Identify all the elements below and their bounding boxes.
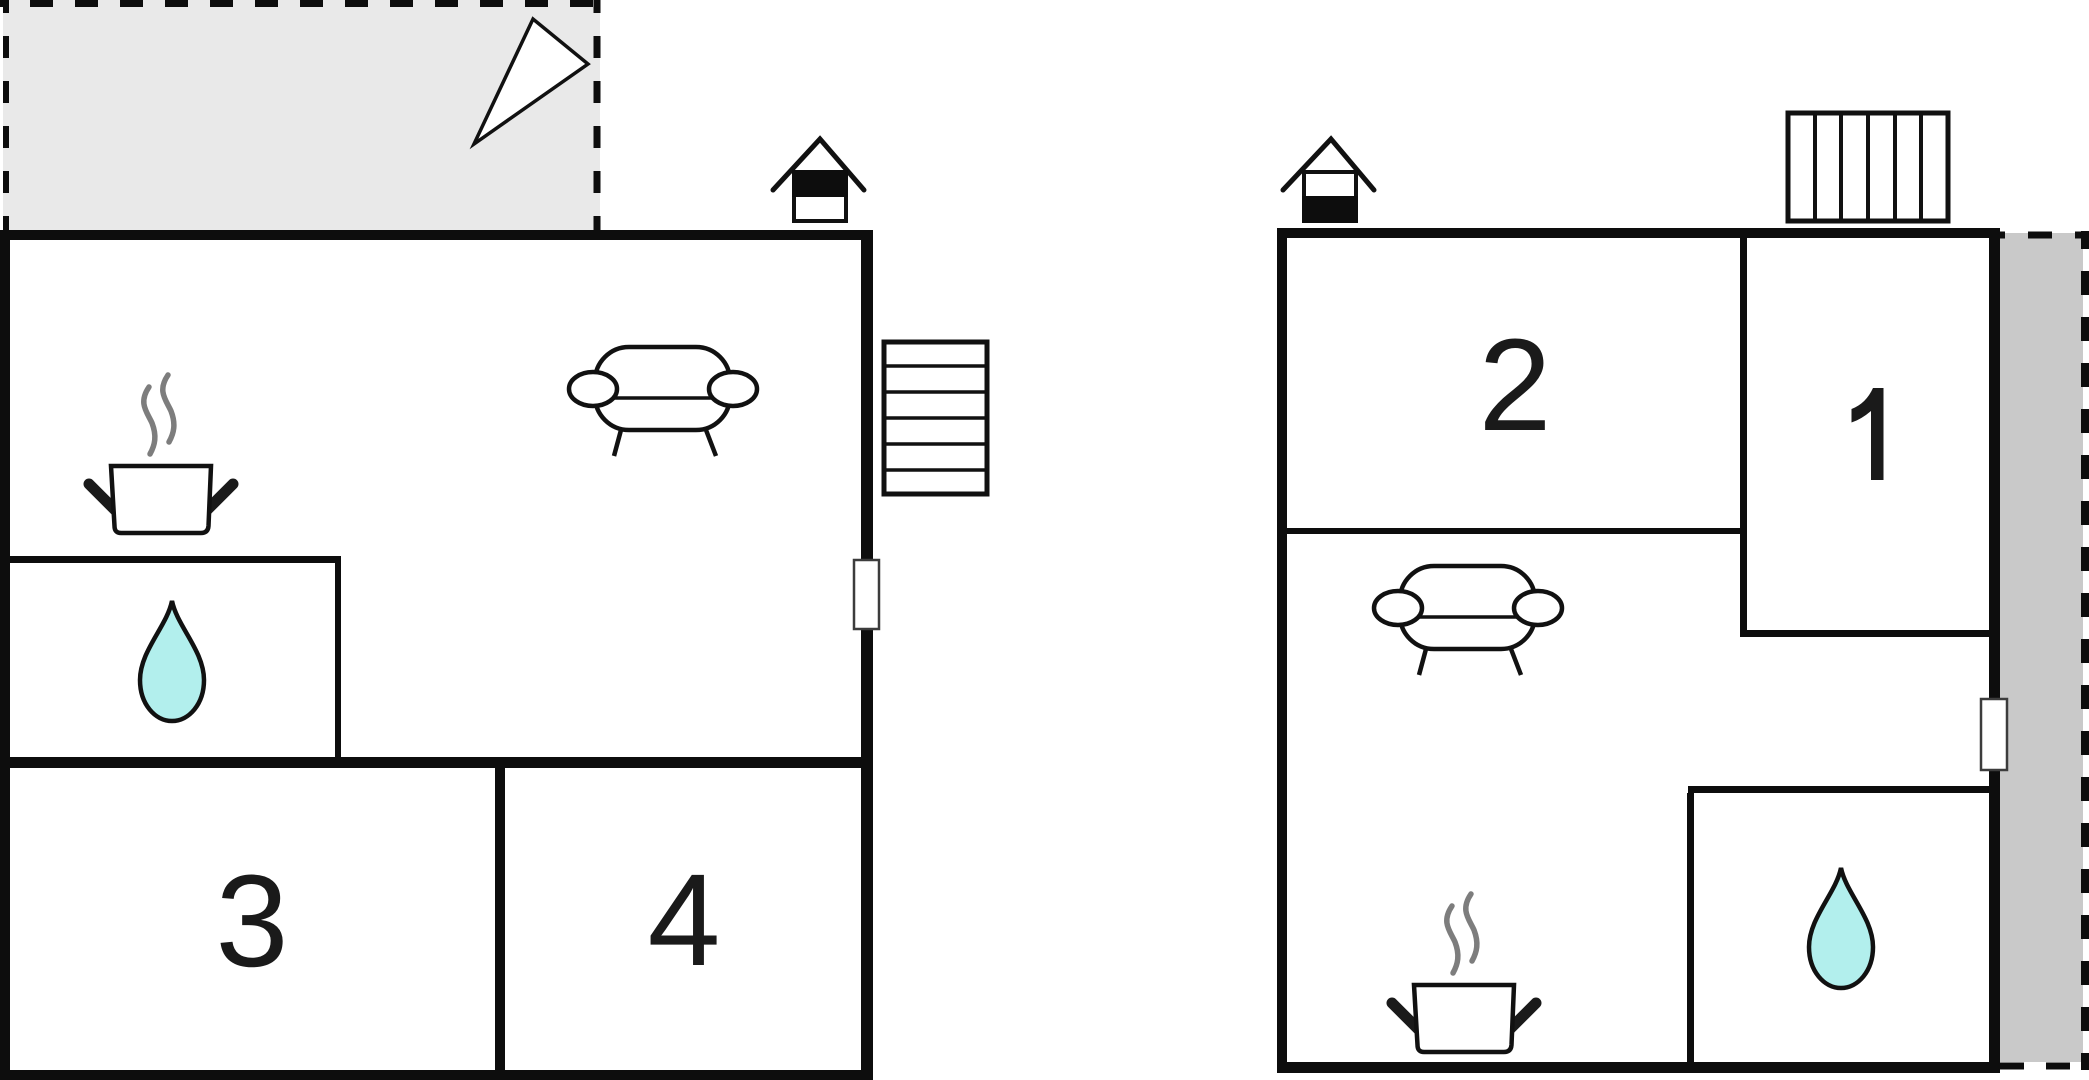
svg-text:2: 2 [1479,311,1552,458]
svg-text:4: 4 [648,846,721,993]
svg-text:3: 3 [216,847,289,994]
